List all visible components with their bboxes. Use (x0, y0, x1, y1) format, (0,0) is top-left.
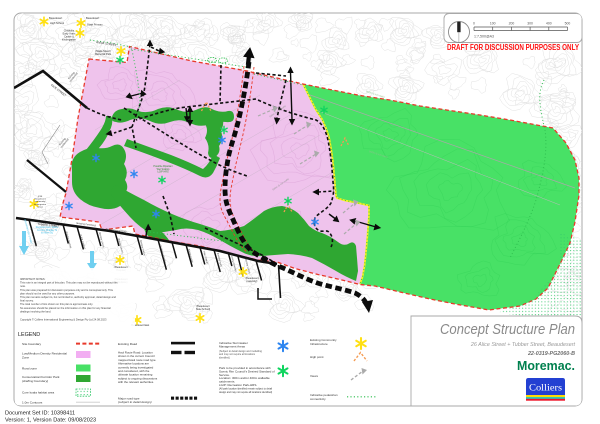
svg-text:design and may not require all: design and may not require all locations… (219, 391, 272, 394)
svg-text:Site boundary: Site boundary (22, 342, 42, 346)
svg-text:Moremac.: Moremac. (517, 359, 575, 373)
svg-text:note.: note. (20, 284, 26, 288)
svg-text:Colliers: Colliers (529, 383, 562, 393)
svg-text:kindergarten: kindergarten (62, 39, 77, 42)
svg-text:Version: 1, Version Date: 09/0: Version: 1, Version Date: 09/08/2023 (5, 418, 96, 424)
svg-text:area): area) (37, 205, 42, 208)
svg-text:Beaudesert: Beaudesert (86, 16, 100, 20)
svg-text:State School): State School) (196, 308, 211, 311)
svg-text:Views: Views (310, 374, 318, 378)
svg-text:400: 400 (546, 22, 552, 26)
svg-text:LGIP: Recreation Park-HRS.: LGIP: Recreation Park-HRS. (219, 383, 257, 387)
svg-text:Memorial Park: Memorial Park (95, 53, 112, 56)
svg-text:to Albert St): to Albert St) (41, 232, 53, 235)
svg-text:LEGEND: LEGEND (18, 332, 40, 338)
svg-text:0: 0 (473, 22, 475, 26)
svg-text:100: 100 (490, 22, 496, 26)
svg-text:1.0m Contours: 1.0m Contours (22, 400, 43, 404)
svg-text:This plan was prepared for dis: This plan was prepared for discussion pu… (20, 288, 114, 292)
svg-text:22-0319-PG2060-B: 22-0319-PG2060-B (527, 351, 575, 357)
svg-text:200: 200 (509, 22, 515, 26)
svg-text:Document Set ID: 10398411: Document Set ID: 10398411 (5, 411, 75, 417)
svg-text:Beaudesert: Beaudesert (49, 16, 63, 20)
svg-text:Rural zone: Rural zone (22, 367, 37, 371)
svg-text:26 Alice Street + Tubber Stree: 26 Alice Street + Tubber Street, Beaudes… (470, 342, 576, 348)
svg-text:(drafting boundary): (drafting boundary) (22, 379, 48, 383)
svg-text:No assurance should be placed: No assurance should be placed on the inf… (20, 306, 111, 310)
svg-text:This plan remains subject to,: This plan remains subject to, but not li… (20, 295, 116, 299)
svg-text:connectivity: connectivity (310, 397, 326, 401)
svg-text:final survey.: final survey. (20, 299, 34, 303)
svg-text:dealings involving the land.: dealings involving the land. (20, 309, 51, 313)
svg-text:plan should not be used for an: plan should not be used for any other pu… (20, 291, 75, 295)
svg-text:Corridor (Bradley St: Corridor (Bradley St (37, 229, 58, 232)
svg-text:Infrastructure: Infrastructure (310, 342, 328, 346)
svg-text:High School: High School (50, 21, 64, 25)
svg-text:Copyright © Colliers Internati: Copyright © Colliers International Engin… (20, 318, 107, 322)
svg-text:1:7,500@A3: 1:7,500@A3 (474, 35, 494, 39)
svg-text:300: 300 (527, 22, 533, 26)
svg-text:Core koala habitat area: Core koala habitat area (22, 390, 54, 394)
svg-text:kindergarten: kindergarten (34, 203, 47, 206)
svg-text:LGIP HRS: LGIP HRS (157, 171, 169, 174)
svg-text:500: 500 (565, 22, 571, 26)
svg-text:Concept Structure Plan: Concept Structure Plan (440, 322, 575, 338)
svg-text:Management Areas: Management Areas (219, 345, 246, 349)
svg-text:Existing Road: Existing Road (118, 342, 137, 346)
svg-text:Beaudesert: Beaudesert (34, 198, 46, 201)
svg-text:IMPORTANT NOTES:: IMPORTANT NOTES: (20, 277, 46, 281)
svg-text:DRAFT FOR DISCUSSION PURPOSES: DRAFT FOR DISCUSSION PURPOSES ONLY (447, 42, 579, 52)
svg-text:The total number of lots shown: The total number of lots shown on this p… (20, 302, 93, 306)
svg-text:High point: High point (310, 355, 324, 359)
svg-text:maternity): maternity) (247, 280, 258, 283)
svg-text:community: community (35, 200, 46, 203)
svg-text:This note is an integral part: This note is an integral part of this pl… (20, 281, 118, 285)
svg-text:with the relevant authorities.: with the relevant authorities. (118, 380, 154, 384)
svg-text:identified): identified) (219, 356, 230, 359)
svg-text:Zone: Zone (22, 355, 29, 359)
svg-text:State Primary: State Primary (87, 23, 103, 27)
svg-text:Regional Open Space: Regional Open Space (36, 227, 59, 229)
svg-text:(subject to detail design): (subject to detail design) (118, 400, 152, 404)
